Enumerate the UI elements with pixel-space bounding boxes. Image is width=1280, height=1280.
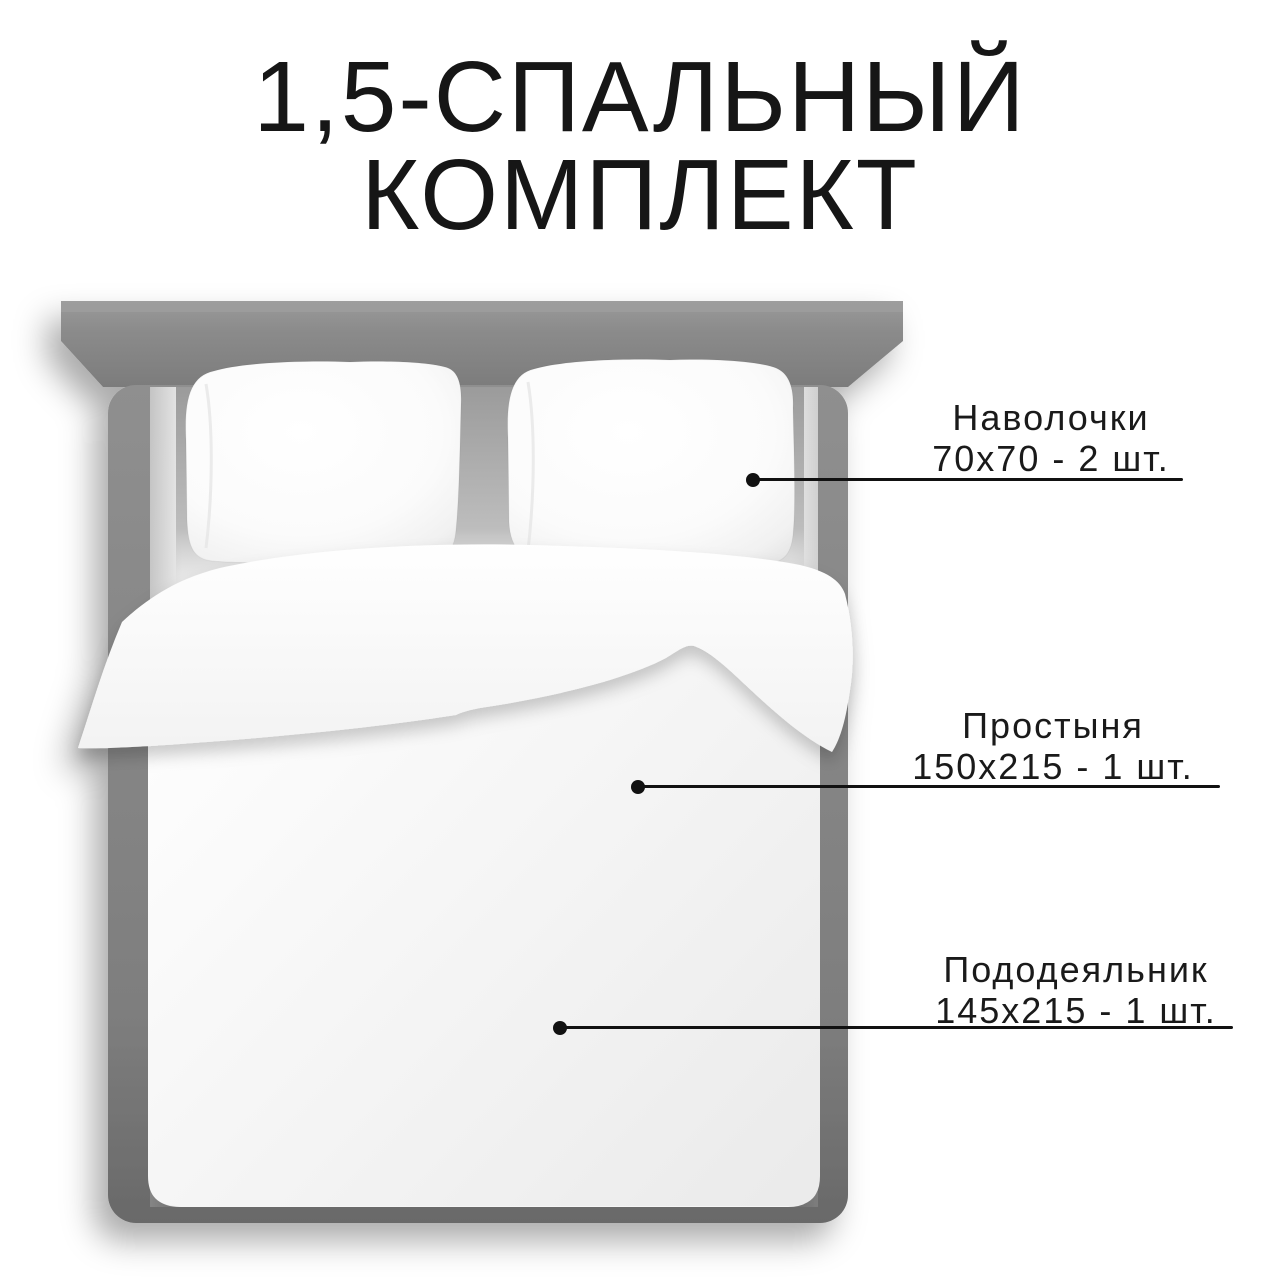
callout-pillowcases-text: Наволочки 70х70 - 2 шт.	[871, 397, 1231, 479]
callout-sheet-name: Простыня	[873, 705, 1233, 746]
callout-duvet-cover-dot	[553, 1021, 567, 1035]
callout-pillowcases-dot	[746, 473, 760, 487]
bed-illustration	[0, 0, 1280, 1280]
callout-pillowcases-name: Наволочки	[871, 397, 1231, 438]
callout-sheet-dot	[631, 780, 645, 794]
callout-pillowcases-size: 70х70 - 2 шт.	[871, 438, 1231, 479]
callout-duvet-cover-size: 145х215 - 1 шт.	[896, 990, 1256, 1031]
infographic-page: 1,5-СПАЛЬНЫЙ КОМПЛЕКТ	[0, 0, 1280, 1280]
callout-sheet-size: 150х215 - 1 шт.	[873, 746, 1233, 787]
callout-duvet-cover-line	[560, 1026, 1233, 1029]
callout-pillowcases-line	[753, 478, 1183, 481]
callout-duvet-cover-name: Пододеяльник	[896, 949, 1256, 990]
callout-duvet-cover-text: Пододеяльник 145х215 - 1 шт.	[896, 949, 1256, 1031]
callout-sheet-text: Простыня 150х215 - 1 шт.	[873, 705, 1233, 787]
pillow-right	[508, 359, 795, 567]
headboard-top-highlight	[61, 301, 903, 312]
callout-sheet-line	[638, 785, 1220, 788]
bed	[61, 301, 903, 1223]
pillow-left	[186, 361, 462, 563]
